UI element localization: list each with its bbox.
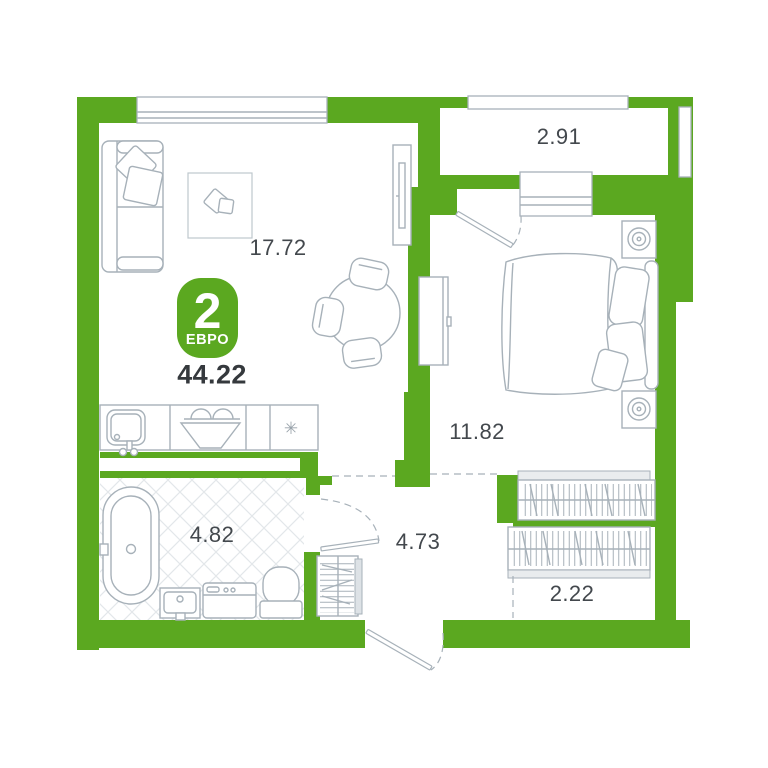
apartment-type-badge: 2 ЕВРО [177,278,238,358]
euro-type-label: ЕВРО [186,332,229,348]
bed [502,254,658,395]
dining-table [311,256,400,369]
bedroom-wardrobe-unit [518,471,655,520]
bathroom-sink [160,588,200,620]
living-room-area-label: 17.72 [249,235,306,261]
floor-plan: 17.72 2.91 11.82 4.82 4.73 2.22 ✳ 2 ЕВРО… [0,0,768,768]
toilet [260,567,302,618]
nightstand-top [622,221,656,258]
nightstand-bottom [622,391,656,428]
bathroom-area-label: 4.82 [190,522,234,548]
washing-machine [203,583,256,618]
balcony-area-label: 2.91 [537,124,581,150]
rooms-count: 2 [194,288,222,334]
hallway-area-label: 4.73 [396,529,440,555]
total-area-label: 44.22 [177,360,247,391]
balcony-side-window [679,107,691,177]
balcony-door-window [520,172,592,216]
closet-area-label: 2.22 [550,581,594,607]
floor-plan-drawing [0,0,768,768]
sofa [102,141,163,272]
tv-stand [393,145,411,245]
entrance-door [366,629,444,670]
bedroom-door [456,211,521,247]
bathtub [100,487,159,604]
fridge-symbol: ✳ [284,419,298,439]
closet-wardrobe-unit [508,527,650,578]
living-room-window [137,97,327,123]
balcony-top-window [468,96,628,109]
bedroom-area-label: 11.82 [449,419,504,445]
coffee-table-rug [188,173,252,238]
bathroom-door [321,499,379,551]
coat-rack [317,556,362,616]
bedroom-cabinet [419,277,451,365]
